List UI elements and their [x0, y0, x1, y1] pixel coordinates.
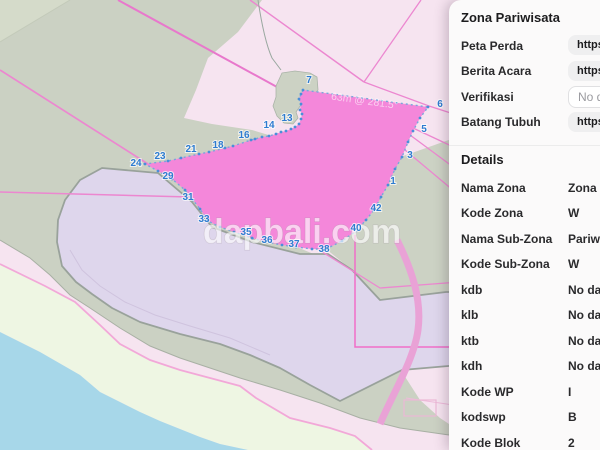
svg-text:21: 21 — [185, 144, 197, 155]
svg-text:13: 13 — [281, 113, 293, 124]
svg-text:18: 18 — [212, 140, 224, 151]
svg-text:40: 40 — [350, 223, 362, 234]
svg-text:3: 3 — [407, 150, 413, 161]
svg-text:24: 24 — [130, 158, 142, 169]
svg-text:29: 29 — [162, 171, 174, 182]
svg-text:31: 31 — [182, 192, 194, 203]
svg-text:5: 5 — [421, 124, 427, 135]
svg-text:38: 38 — [318, 244, 330, 255]
svg-text:7: 7 — [306, 75, 312, 86]
svg-text:37: 37 — [288, 239, 300, 250]
svg-text:14: 14 — [263, 120, 275, 131]
svg-text:6: 6 — [437, 99, 443, 110]
svg-text:36: 36 — [261, 235, 273, 246]
svg-text:dapbali.com: dapbali.com — [203, 213, 401, 251]
svg-text:16: 16 — [238, 130, 250, 141]
svg-text:35: 35 — [240, 227, 252, 238]
svg-text:33: 33 — [198, 214, 210, 225]
svg-text:1: 1 — [390, 176, 396, 187]
svg-text:23: 23 — [154, 151, 166, 162]
svg-text:42: 42 — [370, 203, 382, 214]
